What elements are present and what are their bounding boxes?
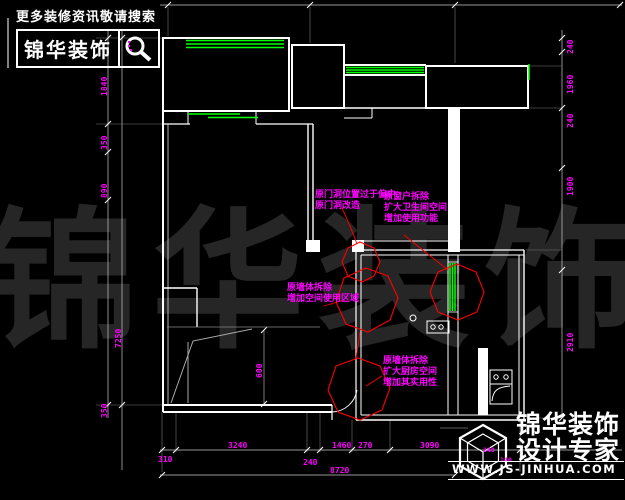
annotation-bathroom-window: 原窗户拆除 扩大卫生间空间 增加使用功能 [384, 192, 447, 225]
leader-line [366, 376, 382, 386]
dim-bottom-4: 1460 [332, 441, 351, 450]
entry-door-swing [332, 390, 357, 412]
drain-symbol [410, 315, 416, 321]
dim-left-1: 1840 [100, 77, 109, 96]
footer-brand-line1: 锦华装饰 [516, 412, 620, 438]
magnifier-icon [120, 29, 160, 68]
floorplan-canvas: 锦华装饰 [0, 0, 625, 500]
footer-rule-bottom [448, 479, 624, 480]
dim-right-3: 240 [566, 114, 575, 128]
balcony-wall [163, 38, 289, 111]
annotation-kitchen: 原墙体拆除 扩大厨房空间 增加其实用性 [383, 356, 437, 389]
dim-bottom-1: 310 [158, 455, 172, 464]
windows [186, 41, 529, 312]
dim-bottom-total: 8720 [330, 466, 349, 475]
top-tagline: 更多装修资讯敬请搜索 [16, 6, 160, 25]
top-brand-name: 锦华装饰 [16, 29, 120, 68]
dim-left-4: 350 [100, 404, 109, 418]
bay-window-wall [292, 45, 344, 108]
annotation-wall-removal: 原墙体拆除 增加空间使用区域 [287, 283, 359, 305]
top-right-room-wall [426, 66, 528, 108]
leader-line [404, 235, 448, 270]
header-logo: 更多装修资讯敬请搜索 锦华装饰 [16, 6, 160, 68]
dim-left-3: 890 [100, 184, 109, 198]
dim-right-2: 1960 [566, 75, 575, 94]
dim-bottom-6: 3090 [420, 441, 439, 450]
dim-left-total: 7250 [114, 329, 123, 348]
footer-website: WWW.JS-JINHUA.COM [452, 462, 616, 476]
furniture-lines [167, 327, 320, 403]
dim-left-2: 350 [100, 136, 109, 150]
dim-bottom-5: 270 [358, 441, 372, 450]
dim-bottom-3: 240 [303, 458, 317, 467]
dim-right-1: 240 [566, 40, 575, 54]
dim-right-5: 2910 [566, 333, 575, 352]
revision-cloud-kitchen [328, 358, 390, 420]
stove-symbol [427, 321, 449, 333]
thick-wall-pier [448, 108, 460, 252]
leader-line [342, 208, 357, 244]
dim-small-1: 240 [483, 446, 495, 454]
kitchen-wall-pier [478, 348, 488, 415]
dim-interior-600: 600 [255, 364, 264, 378]
dim-bottom-2: 3240 [228, 441, 247, 450]
appliance-symbol [490, 370, 512, 404]
dim-right-4: 1900 [566, 177, 575, 196]
